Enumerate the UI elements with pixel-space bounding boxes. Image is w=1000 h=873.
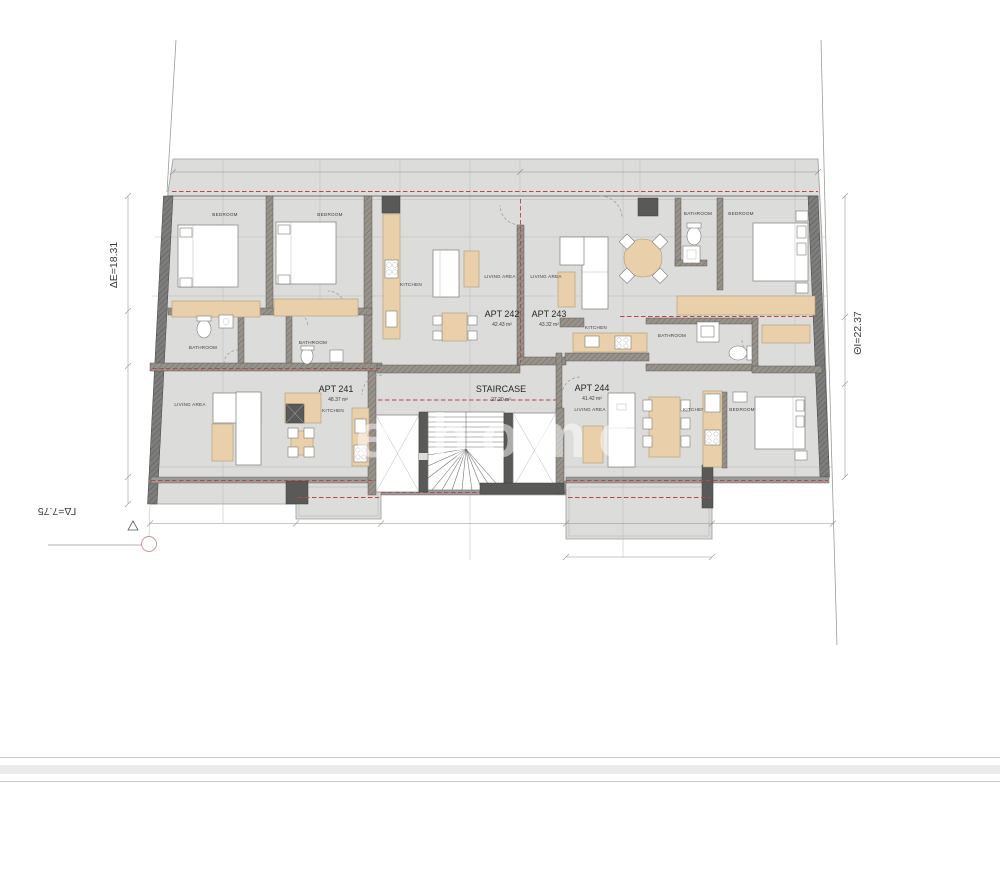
nightstand <box>796 211 808 221</box>
toilet <box>301 348 313 364</box>
sink <box>219 315 233 328</box>
column <box>382 196 400 213</box>
apartment-label: APT 242 <box>485 309 520 319</box>
nightstand <box>733 392 747 402</box>
apartment-label: APT 243 <box>532 309 567 319</box>
shower <box>683 246 700 263</box>
column <box>702 465 713 508</box>
room-label-bathroom: BATHROOM <box>658 333 686 338</box>
chair <box>288 447 298 457</box>
pillow <box>797 243 806 255</box>
chair <box>288 428 298 438</box>
toilet <box>197 320 211 338</box>
boundary-label-right: ΘΙ=22.37 <box>852 311 864 355</box>
pillow <box>796 416 804 427</box>
toilet <box>687 227 701 245</box>
pillow <box>180 278 192 287</box>
room-label-kitchen: KITCHEN <box>400 282 422 287</box>
wardrobe <box>762 325 810 343</box>
nightstand <box>795 451 807 460</box>
pillow <box>797 226 806 238</box>
room-label-bedroom: BEDROOM <box>728 211 754 216</box>
stair-wall-bottom <box>480 483 564 494</box>
sofa <box>582 237 608 309</box>
coffee-table <box>464 251 479 287</box>
pillow <box>180 228 192 237</box>
bottom-wall-right <box>566 477 829 483</box>
room-label-bedroom: BEDROOM <box>729 407 755 412</box>
wardrobe <box>172 301 260 317</box>
chair <box>433 316 442 325</box>
stove <box>705 430 720 445</box>
pillow <box>278 225 290 234</box>
fridge <box>705 394 720 412</box>
room-label-kitchen: KITCHEN <box>585 325 607 330</box>
sofa <box>236 392 261 465</box>
chair <box>304 428 314 438</box>
apartment-area: 43.32 m² <box>539 322 559 328</box>
apartment-area: 42.43 m² <box>492 322 512 328</box>
staircase-label: STAIRCASE <box>476 384 526 394</box>
stove <box>615 336 631 349</box>
apartment-label: APT 244 <box>575 383 610 393</box>
sofa <box>560 237 584 265</box>
nightstand <box>796 283 808 293</box>
dining-table <box>649 397 680 457</box>
room-label-bathroom: BATHROOM <box>299 340 327 345</box>
sofa <box>433 250 459 297</box>
floorplan-page: ΔΕ=18.31 ΘΙ=22.37 ΓΔ=7.75 <box>0 0 1000 873</box>
bottom-wall-left <box>151 477 381 483</box>
room-label-bathroom: BATHROOM <box>189 345 217 350</box>
kitchen-sink <box>585 336 599 347</box>
sink <box>330 350 343 362</box>
pillow <box>796 400 804 411</box>
watermark: e home <box>355 402 644 471</box>
apartment-label: APT 241 <box>319 384 354 394</box>
room-label-living: LIVING AREA <box>530 274 562 279</box>
room-label-bathroom: BATHROOM <box>684 211 712 216</box>
kitchen-sink <box>386 311 397 327</box>
chaise <box>212 424 233 461</box>
chair <box>433 331 442 340</box>
boundary-label-left: ΔΕ=18.31 <box>108 242 120 289</box>
floorplan-drawing: ΔΕ=18.31 ΘΙ=22.37 ΓΔ=7.75 <box>0 0 1000 873</box>
room-label-kitchen: KITCHEN <box>683 407 705 412</box>
room-label-bedroom: BEDROOM <box>317 212 343 217</box>
boundary-label-bottom: ΓΔ=7.75 <box>38 505 77 517</box>
chair <box>681 418 690 429</box>
toilet <box>729 346 747 360</box>
site-boundary-left-lower <box>149 505 150 537</box>
room-label-living: LIVING AREA <box>484 274 516 279</box>
chair <box>304 447 314 457</box>
footer-divider <box>0 758 1000 782</box>
wardrobe <box>274 299 358 316</box>
chair <box>681 436 690 447</box>
column <box>286 481 308 504</box>
chair <box>468 331 477 340</box>
dining-table <box>442 313 467 341</box>
kitchen-counter <box>573 333 647 352</box>
wardrobe <box>677 296 815 315</box>
column <box>638 198 658 216</box>
room-label-kitchen: KITCHEN <box>322 408 344 413</box>
survey-point-circle <box>142 537 157 552</box>
room-label-living: LIVING AREA <box>174 402 206 407</box>
room-label-bedroom: BEDROOM <box>212 212 238 217</box>
pillow <box>278 275 290 284</box>
apartment-area: 48.37 m² <box>328 397 348 403</box>
survey-triangle-marker <box>128 521 138 530</box>
chair <box>468 316 477 325</box>
